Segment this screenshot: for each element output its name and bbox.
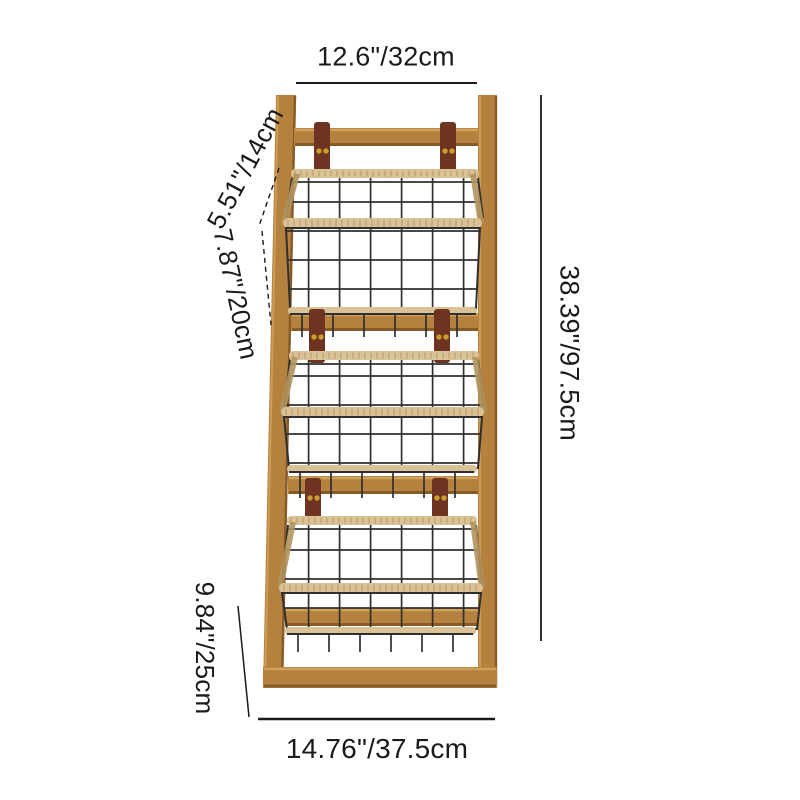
dimension-label-top-width: 12.6"/32cm bbox=[317, 44, 455, 71]
rivet bbox=[436, 334, 441, 339]
rivet bbox=[442, 148, 447, 153]
wire-basket-2 bbox=[281, 351, 484, 498]
rivet bbox=[449, 148, 454, 153]
rivet bbox=[314, 495, 319, 500]
rivet bbox=[434, 495, 439, 500]
wire-basket-3 bbox=[279, 516, 483, 652]
dimension-label-overall-height: 38.39"/97.5cm bbox=[556, 265, 583, 441]
rivet bbox=[443, 334, 448, 339]
leader-line-basket-height bbox=[262, 231, 271, 325]
product-illustration bbox=[0, 0, 800, 800]
rivet bbox=[311, 334, 316, 339]
rivet bbox=[441, 495, 446, 500]
rivet bbox=[316, 148, 321, 153]
rivet bbox=[307, 495, 312, 500]
rivet bbox=[323, 148, 328, 153]
dimension-label-lower-section: 9.84"/25cm bbox=[192, 582, 218, 715]
product-dimension-diagram: 12.6"/32cm 38.39"/97.5cm 5.51"/14cm 7.87… bbox=[0, 0, 800, 800]
dimension-label-bottom-width: 14.76"/37.5cm bbox=[286, 735, 468, 763]
dimension-line-lower-section bbox=[238, 606, 249, 717]
rivet bbox=[318, 334, 323, 339]
